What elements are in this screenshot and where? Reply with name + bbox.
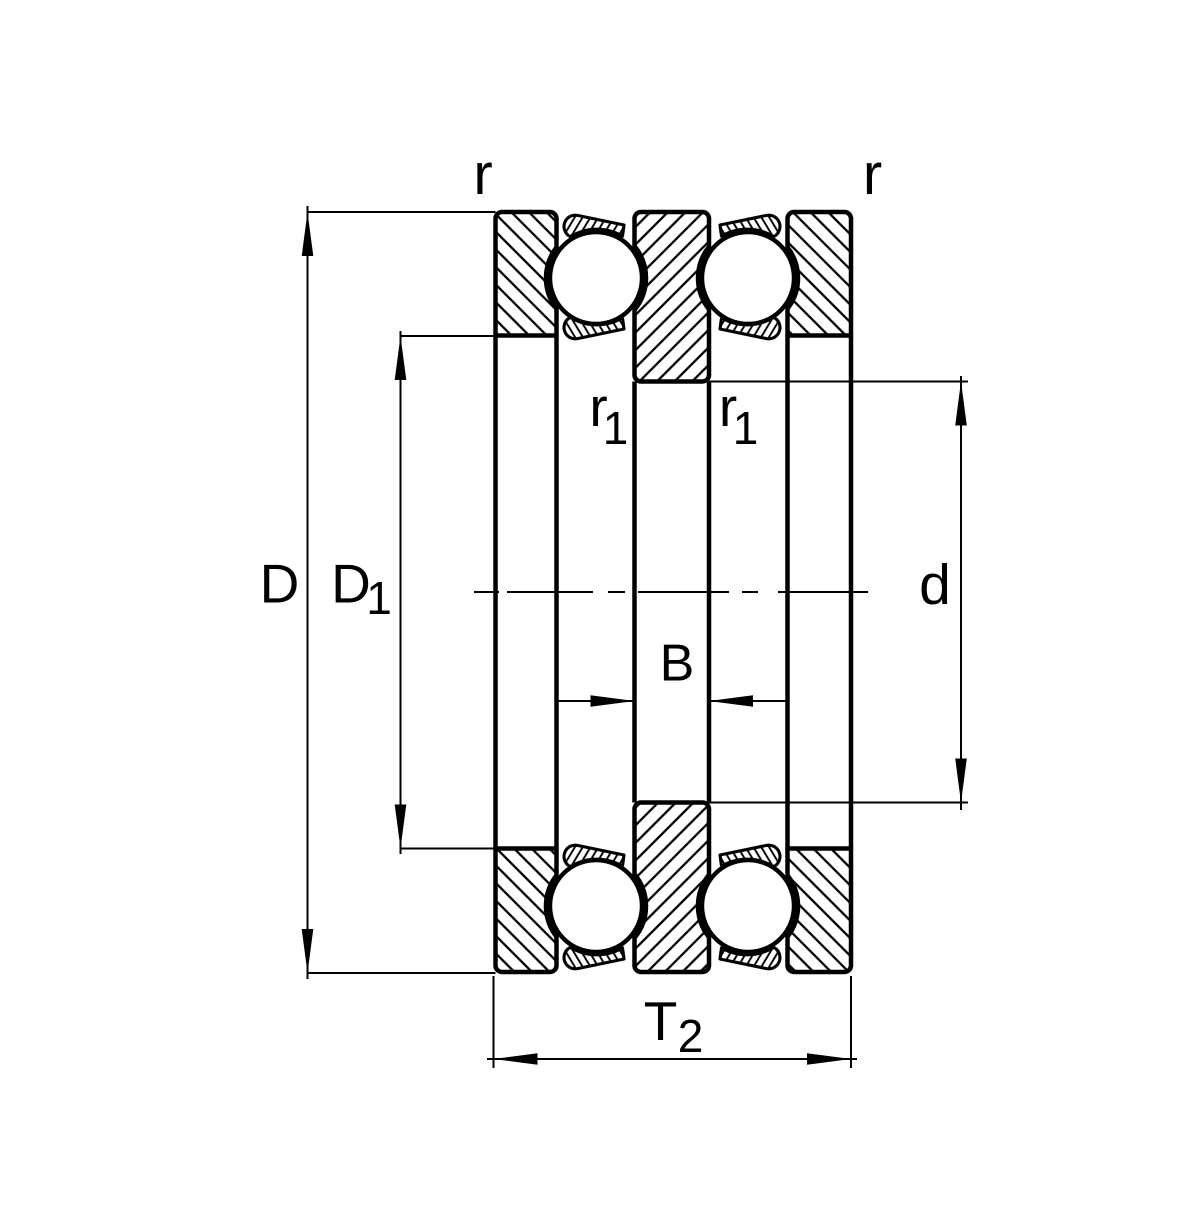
svg-text:2: 2 [678,1010,704,1062]
svg-text:r: r [473,142,492,207]
svg-text:1: 1 [733,402,759,454]
svg-text:D: D [260,553,300,615]
svg-text:T: T [644,990,678,1052]
svg-text:1: 1 [366,572,392,624]
svg-text:1: 1 [603,402,629,454]
svg-text:D: D [331,553,371,615]
svg-text:r: r [863,142,882,207]
svg-text:d: d [919,553,951,617]
svg-text:B: B [660,635,695,693]
